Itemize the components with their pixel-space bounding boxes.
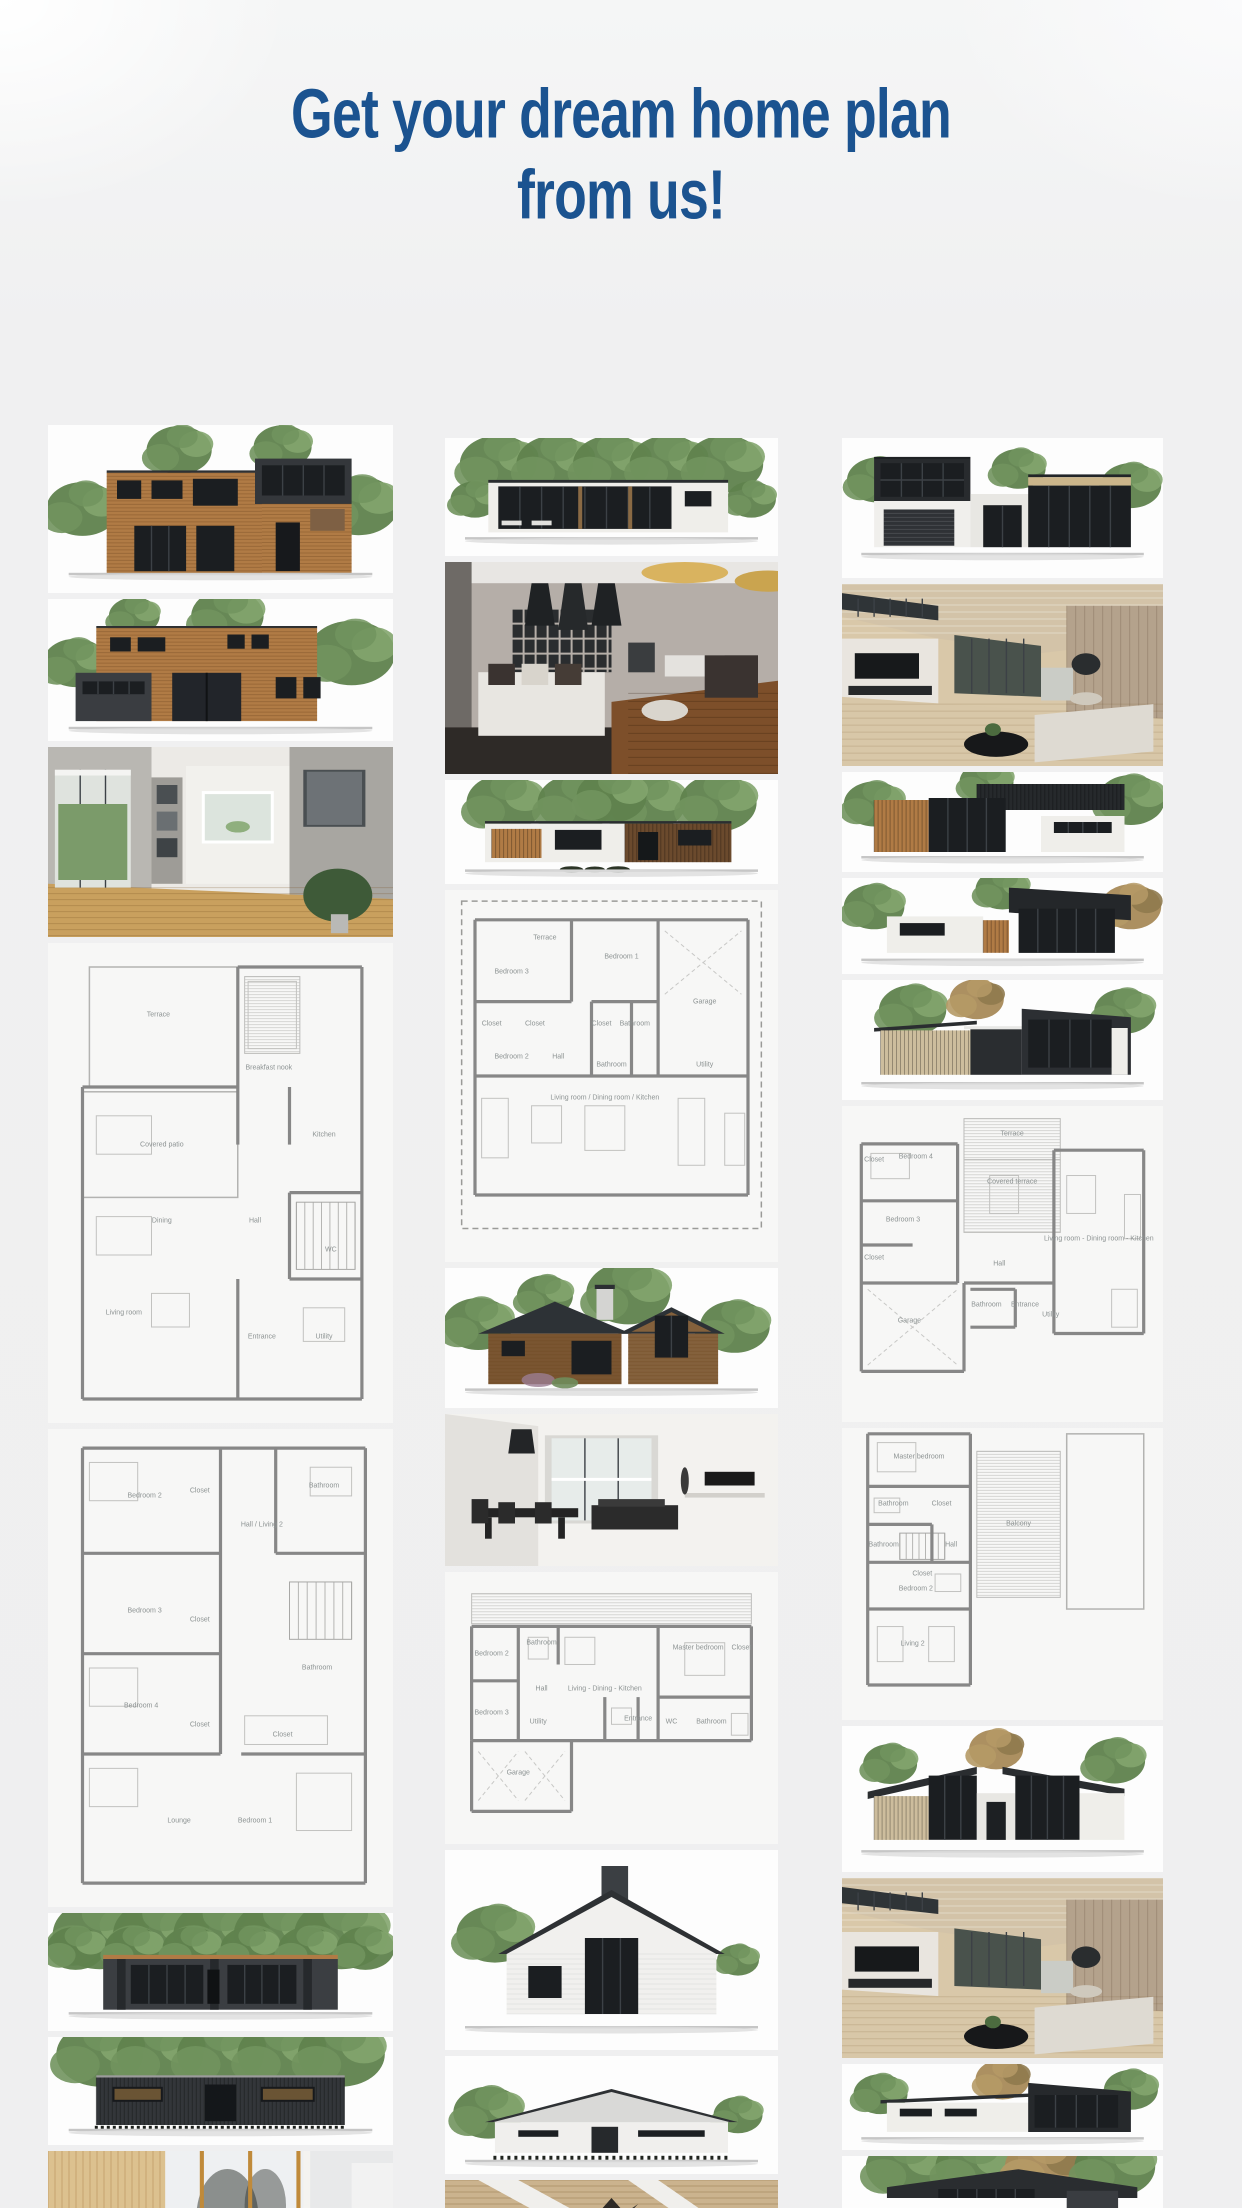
wood-house-dark-garage-render[interactable]: [48, 599, 393, 741]
wide-floor-plan-with-garage[interactable]: Bedroom 2BathroomHallLiving - Dining - K…: [445, 1572, 778, 1844]
dark-house-roof-trees-render[interactable]: [48, 1913, 393, 2031]
flat-roof-glass-house-render[interactable]: [445, 438, 778, 556]
room-label: Bathroom: [596, 1061, 626, 1068]
room-label: Entrance: [1011, 1302, 1039, 1309]
room-label: Covered terrace: [987, 1178, 1037, 1185]
wood-two-story-house-render[interactable]: [48, 425, 393, 593]
wood-pillar-interior-photo[interactable]: [48, 2151, 393, 2208]
room-label: Closet: [525, 1020, 545, 1027]
room-label: Living room: [106, 1309, 142, 1316]
room-label: Bedroom 3: [494, 968, 528, 975]
room-label: Bathroom: [696, 1718, 726, 1725]
room-label: Living room / Dining room / Kitchen: [550, 1095, 659, 1102]
black-modern-house-render[interactable]: [842, 878, 1163, 974]
room-label: Utility: [1042, 1311, 1059, 1318]
room-label: Bedroom 2: [899, 1585, 933, 1592]
room-label: Closet: [932, 1500, 952, 1507]
room-label: Bathroom: [302, 1665, 332, 1672]
room-label: Hall: [993, 1261, 1005, 1268]
room-label: Bedroom 3: [127, 1607, 161, 1614]
room-label: Bathroom: [971, 1302, 1001, 1309]
room-label: Garage: [507, 1770, 530, 1777]
room-label: Kitchen: [312, 1132, 335, 1139]
page-title-line2: from us!: [124, 156, 1118, 238]
room-label: Utility: [530, 1718, 547, 1725]
room-label: Master bedroom: [673, 1645, 724, 1652]
room-label: Bedroom 3: [474, 1710, 508, 1717]
room-label: Terrace: [1000, 1131, 1023, 1138]
room-label: Bedroom 3: [886, 1216, 920, 1223]
room-label: Bathroom: [869, 1541, 899, 1548]
room-label: WC: [325, 1247, 337, 1254]
room-label: Dining: [152, 1218, 172, 1225]
room-label: Bedroom 2: [127, 1492, 161, 1499]
room-label: Bathroom: [526, 1639, 556, 1646]
room-label: Entrance: [248, 1333, 276, 1340]
room-label: Closet: [190, 1617, 210, 1624]
white-dining-interior-photo[interactable]: [445, 1414, 778, 1566]
room-label: Bedroom 1: [604, 953, 638, 960]
room-label: WC: [666, 1718, 678, 1725]
dark-slant-roof-house-render[interactable]: [842, 2156, 1163, 2208]
room-label: Terrace: [147, 1012, 170, 1019]
page-title: Get your dream home plan from us!: [124, 74, 1118, 237]
page-title-line1: Get your dream home plan: [124, 74, 1118, 156]
room-label: Living - Dining - Kitchen: [568, 1685, 642, 1692]
floor-plan-first-floor[interactable]: TerraceBreakfast nookCovered patioKitche…: [48, 943, 393, 1423]
wood-ceiling-interior-photo[interactable]: [445, 2180, 778, 2208]
room-label: Closet: [190, 1722, 210, 1729]
room-label: Covered patio: [140, 1141, 184, 1148]
room-label: Closet: [592, 1020, 612, 1027]
butterfly-roof-house-render[interactable]: [842, 1726, 1163, 1872]
room-label: Closet: [864, 1254, 884, 1261]
room-label: Garage: [693, 998, 716, 1005]
room-label: Breakfast nook: [245, 1064, 292, 1071]
black-glass-modern-house-render[interactable]: [842, 438, 1163, 578]
two-story-floor-plan-first-floor[interactable]: ClosetBedroom 4TerraceCovered terraceBed…: [842, 1106, 1163, 1422]
black-wood-modern-house-render[interactable]: [842, 772, 1163, 872]
white-slant-glass-house-render[interactable]: [842, 2064, 1163, 2150]
room-label: Living room - Dining room - Kitchen: [1044, 1235, 1154, 1242]
dark-house-elevation-render[interactable]: [48, 2037, 393, 2145]
wood-cathedral-interior-photo[interactable]: [842, 584, 1163, 766]
room-label: Utility: [315, 1333, 332, 1340]
room-label: Closet: [482, 1020, 502, 1027]
single-story-floor-plan[interactable]: TerraceBedroom 1GarageBedroom 3ClosetClo…: [445, 890, 778, 1262]
room-label: Bathroom: [878, 1500, 908, 1507]
room-label: Closet: [864, 1156, 884, 1163]
room-label: Hall: [945, 1541, 957, 1548]
room-label: Bathroom: [620, 1020, 650, 1027]
room-label: Living 2: [901, 1641, 925, 1648]
room-label: Balcony: [1006, 1521, 1031, 1528]
gable-wood-house-render[interactable]: [445, 1268, 778, 1408]
wood-cathedral-interior-photo-2[interactable]: [842, 1878, 1163, 2058]
room-label: Bathroom: [309, 1483, 339, 1490]
room-label: Bedroom 1: [238, 1817, 272, 1824]
room-label: Closet: [273, 1731, 293, 1738]
room-label: Closet: [731, 1645, 751, 1652]
page: Get your dream home plan from us! Terrac…: [0, 0, 1242, 2208]
room-label: Closet: [190, 1488, 210, 1495]
room-label: Hall: [249, 1218, 261, 1225]
room-label: Master bedroom: [894, 1454, 945, 1461]
slant-roof-modern-house-render[interactable]: [842, 980, 1163, 1100]
room-label: Hall: [552, 1054, 564, 1061]
room-label: Utility: [696, 1061, 713, 1068]
room-label: Bedroom 4: [124, 1703, 158, 1710]
white-gable-house-chimney-render[interactable]: [445, 1850, 778, 2050]
dark-living-room-interior-photo[interactable]: [445, 562, 778, 774]
two-story-floor-plan-second-floor[interactable]: Master bedroomBathroomClosetBathroomHall…: [842, 1428, 1163, 1720]
floor-plan-second-floor[interactable]: Bedroom 2ClosetHall / Living 2BathroomBe…: [48, 1429, 393, 1907]
room-label: Bedroom 4: [899, 1153, 933, 1160]
room-label: Terrace: [533, 935, 556, 942]
room-label: Entrance: [624, 1715, 652, 1722]
room-label: Bedroom 2: [494, 1054, 528, 1061]
white-wood-flat-house-render[interactable]: [445, 780, 778, 884]
white-gable-house-render[interactable]: [445, 2056, 778, 2174]
room-label: Lounge: [167, 1817, 190, 1824]
room-label: Hall: [536, 1685, 548, 1692]
room-label: Closet: [912, 1571, 932, 1578]
room-label: Bedroom 2: [474, 1650, 508, 1657]
bright-interior-photo[interactable]: [48, 747, 393, 937]
room-label: Hall / Living 2: [241, 1521, 283, 1528]
room-label: Garage: [898, 1317, 921, 1324]
